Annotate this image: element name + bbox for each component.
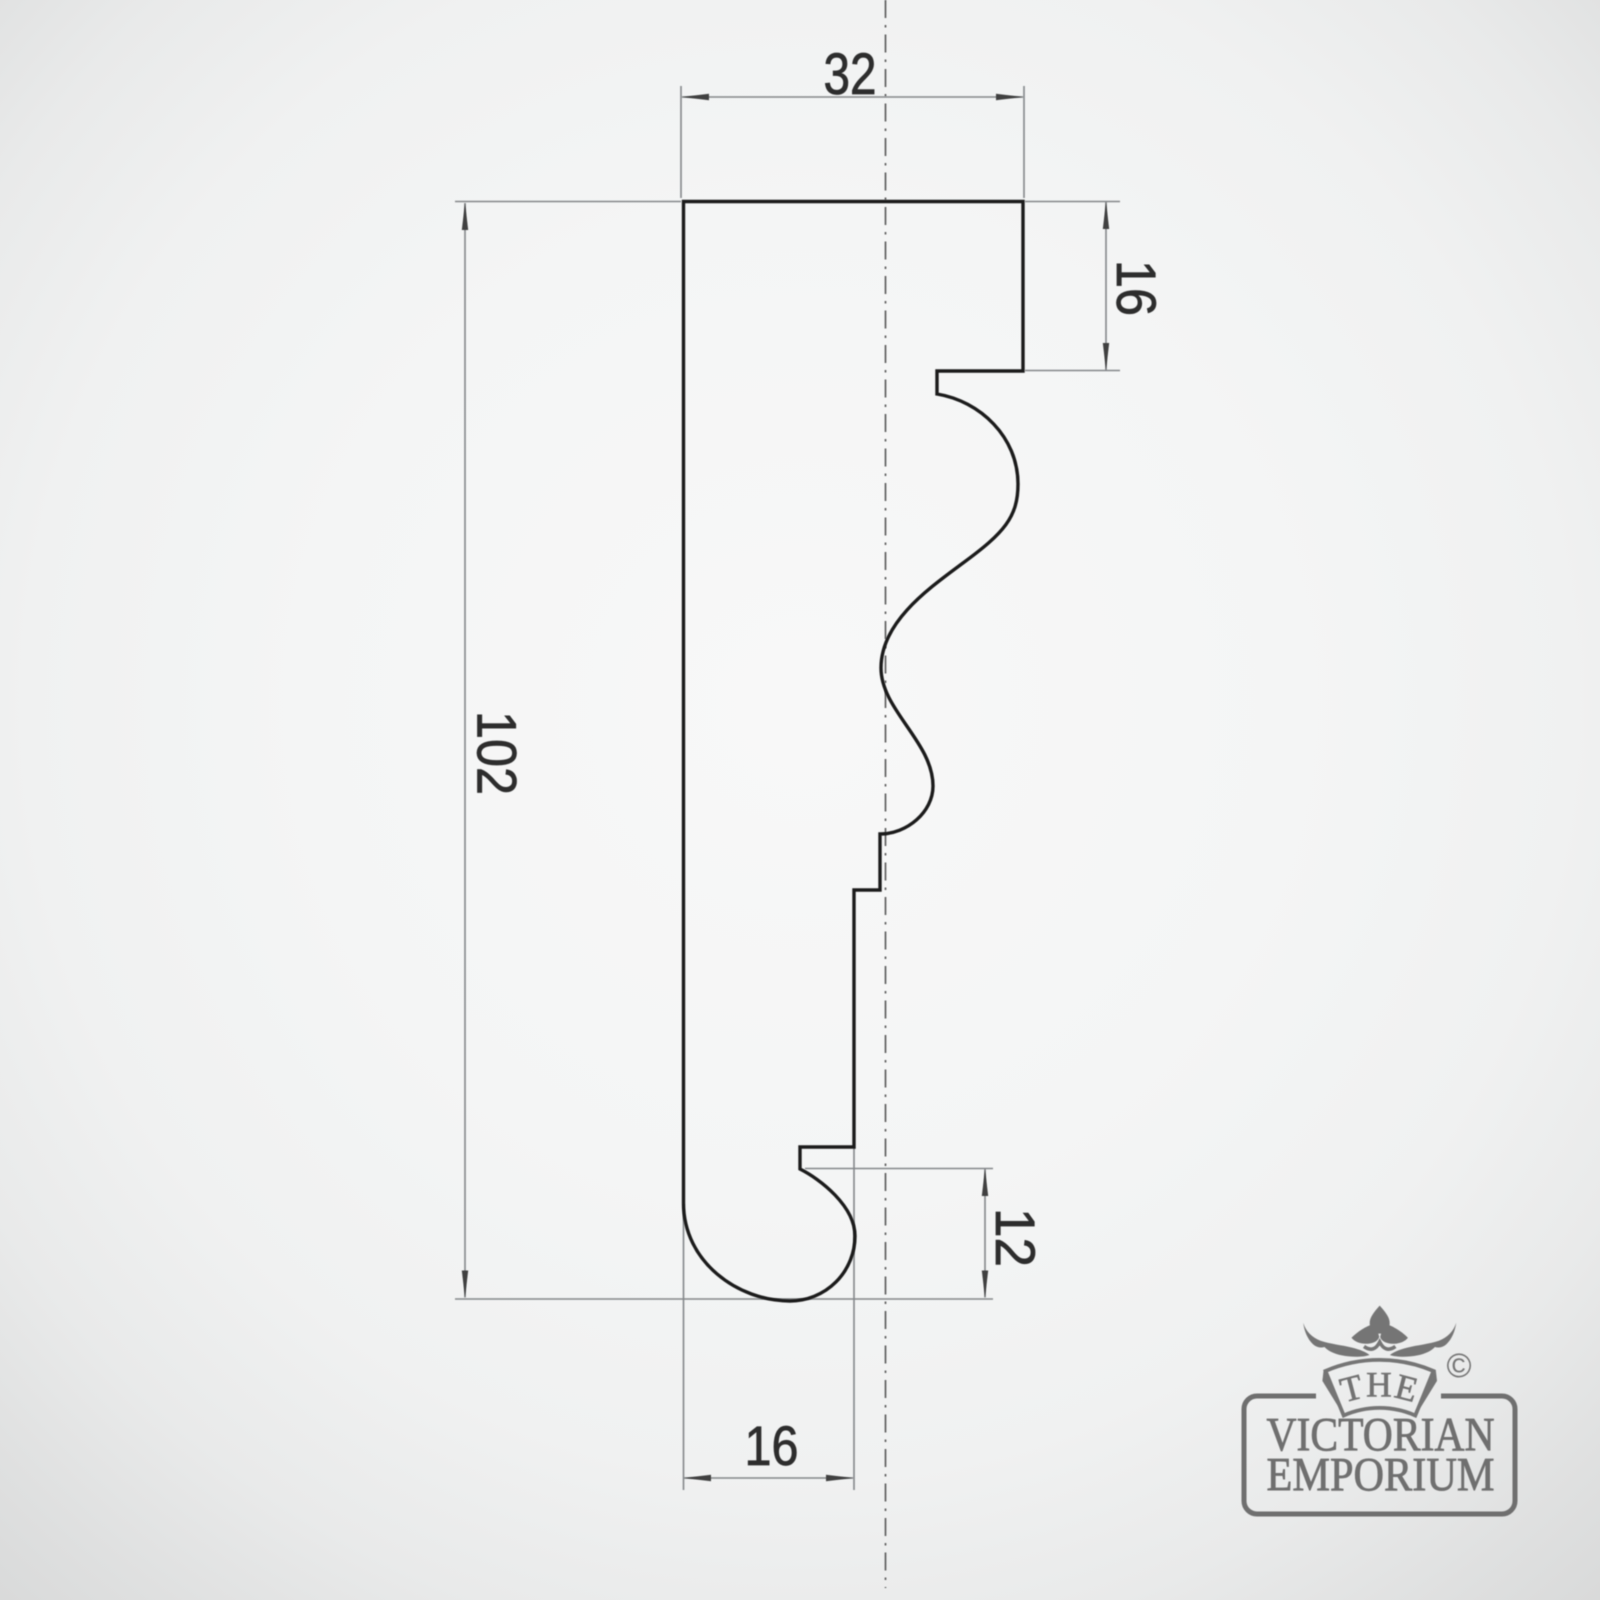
svg-text:12: 12 [984,1208,1047,1267]
svg-text:102: 102 [466,711,529,795]
svg-text:16: 16 [1105,260,1168,316]
svg-text:16: 16 [745,1414,799,1477]
svg-text:THE: THE [1336,1365,1423,1411]
svg-text:©: © [1446,1347,1471,1385]
svg-text:EMPORIUM: EMPORIUM [1267,1449,1495,1502]
svg-text:32: 32 [824,42,877,107]
